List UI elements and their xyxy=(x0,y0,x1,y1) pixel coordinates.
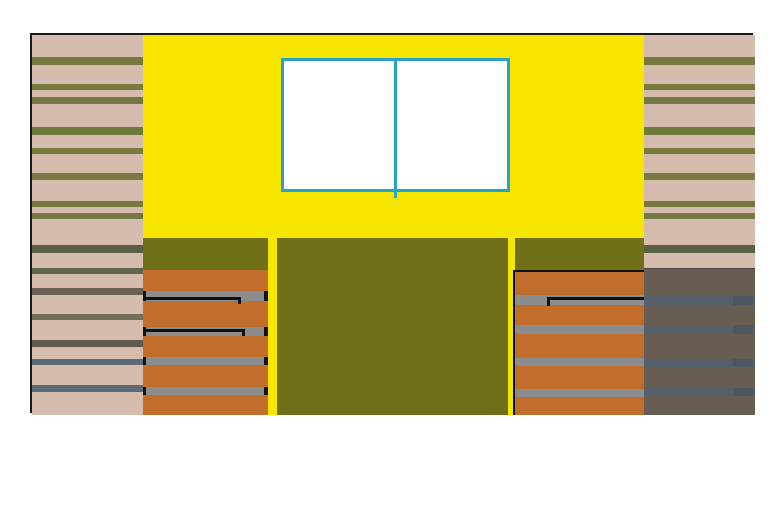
slat-line-tick xyxy=(242,329,245,336)
siding-stripe xyxy=(32,84,143,90)
door-slat xyxy=(515,389,644,397)
slat-edge-tick xyxy=(264,327,268,336)
shadow-slat-endcap xyxy=(733,388,753,396)
slat-edge-tick xyxy=(264,291,268,301)
siding-stripe xyxy=(32,314,143,320)
shadow-slat xyxy=(644,359,755,367)
shadow-slat xyxy=(644,296,755,305)
slat-edge-tick xyxy=(143,291,146,301)
right-lintel-band xyxy=(515,238,644,270)
door-slat xyxy=(143,357,268,365)
siding-stripe xyxy=(32,201,143,207)
siding-stripe xyxy=(32,288,143,295)
slat-line-tick xyxy=(238,297,241,304)
siding-stripe xyxy=(32,57,143,65)
shadow-wall xyxy=(644,268,755,415)
window-right-pane xyxy=(397,61,507,189)
window-left-pane xyxy=(284,61,394,189)
slat-edge-tick xyxy=(264,357,268,365)
slat-line-tick xyxy=(547,297,550,306)
door-slat xyxy=(515,325,644,334)
siding-stripe xyxy=(32,245,143,253)
siding-stripe xyxy=(644,148,755,154)
siding-stripe xyxy=(644,97,755,104)
siding-stripe xyxy=(644,127,755,135)
right-door-panel xyxy=(513,238,644,415)
siding-stripe xyxy=(32,173,143,180)
siding-stripe xyxy=(32,340,143,347)
shadow-slat-endcap xyxy=(733,296,753,305)
facade-outline xyxy=(30,33,753,413)
siding-stripe xyxy=(32,148,143,154)
slat-shadow-line xyxy=(143,297,241,300)
siding-stripe xyxy=(32,97,143,104)
left-lintel-band xyxy=(143,238,268,270)
siding-stripe xyxy=(644,201,755,207)
siding-stripe xyxy=(32,359,143,365)
siding-stripe xyxy=(32,385,143,392)
left-door-panel xyxy=(143,238,268,415)
window xyxy=(281,58,510,192)
center-door-panel xyxy=(277,238,508,415)
siding-stripe xyxy=(644,213,755,219)
slat-edge-tick xyxy=(264,387,268,395)
shadow-slat xyxy=(644,388,755,396)
siding-stripe xyxy=(644,84,755,90)
shadow-slat xyxy=(644,325,755,334)
window-mullion xyxy=(394,61,397,198)
panel-outline-top xyxy=(513,270,644,272)
siding-stripe xyxy=(644,245,755,253)
panel-outline-left xyxy=(513,270,515,415)
shadow-slat-endcap xyxy=(733,325,753,334)
door-slat xyxy=(515,358,644,366)
slat-edge-tick xyxy=(143,327,146,336)
slat-edge-tick xyxy=(143,387,146,395)
siding-stripe xyxy=(32,127,143,135)
slat-shadow-line xyxy=(547,297,644,300)
shadow-slat-endcap xyxy=(733,359,753,367)
siding-stripe xyxy=(32,268,143,274)
siding-stripe xyxy=(644,57,755,65)
left-siding-wall xyxy=(32,35,143,415)
door-slat xyxy=(143,387,268,395)
siding-stripe xyxy=(644,173,755,180)
elevation-canvas xyxy=(0,0,773,508)
slat-edge-tick xyxy=(143,357,146,365)
slat-shadow-line xyxy=(143,329,245,332)
siding-stripe xyxy=(32,213,143,219)
